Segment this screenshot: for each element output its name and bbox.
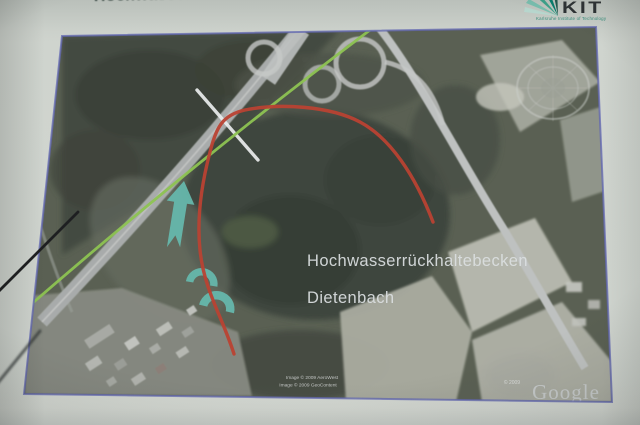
map-label-line2: Dietenbach <box>307 289 394 307</box>
circle-center <box>541 78 565 98</box>
imagery-credit-line2: Image © 2009 GeoContent <box>279 382 337 389</box>
green-patch <box>222 216 278 248</box>
watermark-year: © 2009 <box>504 379 520 386</box>
building <box>588 300 600 309</box>
photo-frame: Hochwasserrückhaltebecken Dietenbach KIT… <box>0 0 640 425</box>
building <box>566 282 582 292</box>
imagery-credit-line1: Image © 2009 AeroWest <box>286 374 339 381</box>
map-label-line1: Hochwasserrückhaltebecken <box>307 252 528 270</box>
building <box>572 318 586 326</box>
map-imagery: Hochwasserrückhaltebecken Dietenbach Ima… <box>20 20 632 410</box>
aerial-map: Hochwasserrückhaltebecken Dietenbach Ima… <box>0 0 640 425</box>
circular-structure <box>517 55 589 121</box>
